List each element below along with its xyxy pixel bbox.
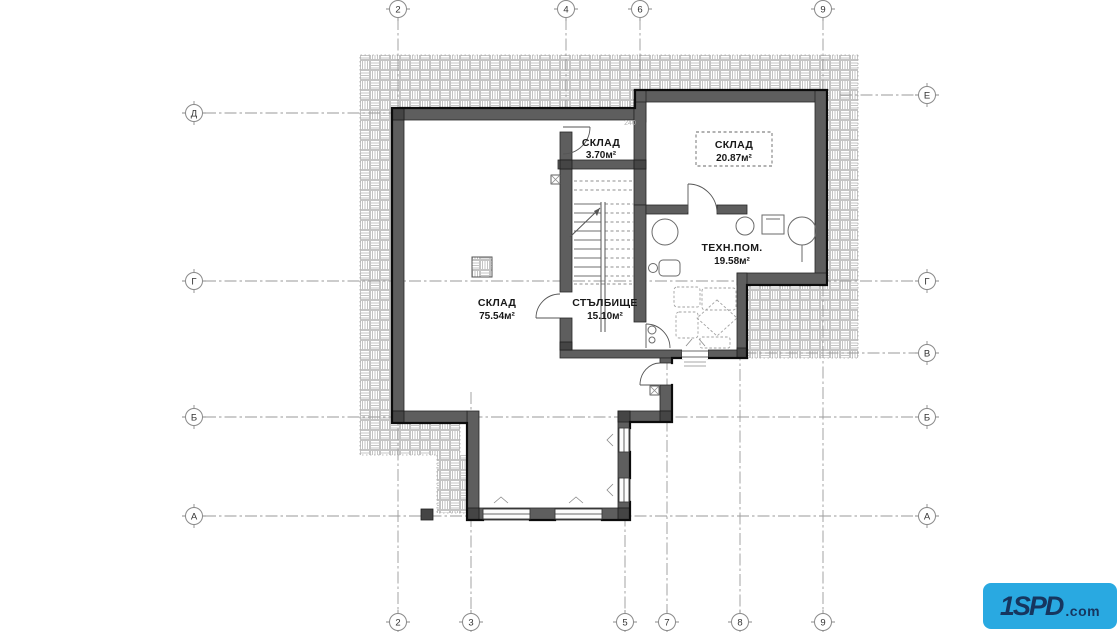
grid-marker-top-2: 2	[386, 0, 410, 21]
grid-marker-bottom-5: 5	[613, 610, 637, 632]
grid-marker-left-g: Г	[182, 269, 206, 293]
grid-marker-left-a: А	[182, 504, 206, 528]
svg-text:9: 9	[820, 617, 825, 628]
room-area: 75.54м²	[479, 311, 515, 322]
grid-marker-right-g: Г	[915, 269, 939, 293]
svg-text:Б: Б	[924, 412, 930, 423]
grid-marker-left-b: Б	[182, 405, 206, 429]
grid-marker-right-a: А	[915, 504, 939, 528]
grid-marker-bottom-7: 7	[655, 610, 679, 632]
dimension-note: 240	[624, 120, 636, 127]
windows	[483, 428, 629, 519]
brand-logo[interactable]: 1SPD .com	[983, 583, 1117, 629]
grid-marker-top-9: 9	[811, 0, 835, 21]
brand-logo-text: 1SPD	[1000, 593, 1063, 620]
grid-marker-right-e: Е	[915, 83, 939, 107]
grid-marker-bottom-9: 9	[811, 610, 835, 632]
room-label-tehn-pom: ТЕХН.ПОМ. 19.58м²	[702, 242, 763, 267]
svg-text:4: 4	[563, 4, 568, 15]
grid-marker-left-d: Д	[182, 101, 206, 125]
svg-text:3: 3	[468, 617, 473, 628]
grid-marker-bottom-8: 8	[728, 610, 752, 632]
svg-text:6: 6	[637, 4, 642, 15]
svg-text:5: 5	[622, 617, 627, 628]
svg-text:Е: Е	[924, 90, 930, 101]
grid-marker-bottom-3: 3	[459, 610, 483, 632]
structural-column	[472, 257, 492, 277]
svg-text:А: А	[191, 511, 198, 522]
room-area: 3.70м²	[586, 150, 617, 161]
svg-text:Д: Д	[191, 108, 198, 119]
furniture-sketch	[674, 287, 737, 348]
svg-text:9: 9	[820, 4, 825, 15]
svg-text:А: А	[924, 511, 931, 522]
grid-marker-right-b: Б	[915, 405, 939, 429]
grid-marker-top-4: 4	[554, 0, 578, 21]
room-label-sklad-2087: СКЛАД 20.87м²	[696, 132, 772, 166]
floor-plan-page: СКЛАД 3.70м² СКЛАД 20.87м² ТЕХН.ПОМ. 19.…	[0, 0, 1120, 632]
svg-text:7: 7	[664, 617, 669, 628]
svg-text:Г: Г	[191, 276, 196, 287]
svg-text:В: В	[924, 348, 930, 359]
brand-logo-suffix: .com	[1065, 603, 1100, 619]
room-area: 19.58м²	[714, 256, 750, 267]
room-name: СТЪЛБИЩЕ	[572, 297, 637, 309]
svg-text:Б: Б	[191, 412, 197, 423]
room-name: СКЛАД	[582, 137, 621, 149]
svg-text:2: 2	[395, 617, 400, 628]
floor-plan-canvas: СКЛАД 3.70м² СКЛАД 20.87м² ТЕХН.ПОМ. 19.…	[0, 0, 1120, 632]
room-label-sklad-370: СКЛАД 3.70м²	[582, 137, 621, 161]
room-label-sklad-7554: СКЛАД 75.54м²	[478, 297, 517, 322]
grid-marker-right-v: В	[915, 341, 939, 365]
room-area: 20.87м²	[716, 153, 752, 164]
room-area: 15.10м²	[587, 311, 623, 322]
grid-marker-bottom-2: 2	[386, 610, 410, 632]
svg-text:Г: Г	[924, 276, 929, 287]
svg-text:2: 2	[395, 4, 400, 15]
grid-marker-top-6: 6	[628, 0, 652, 21]
svg-text:8: 8	[737, 617, 742, 628]
room-name: СКЛАД	[478, 297, 517, 309]
room-name: ТЕХН.ПОМ.	[702, 242, 763, 254]
room-name: СКЛАД	[715, 139, 754, 151]
exterior-column	[421, 509, 433, 520]
